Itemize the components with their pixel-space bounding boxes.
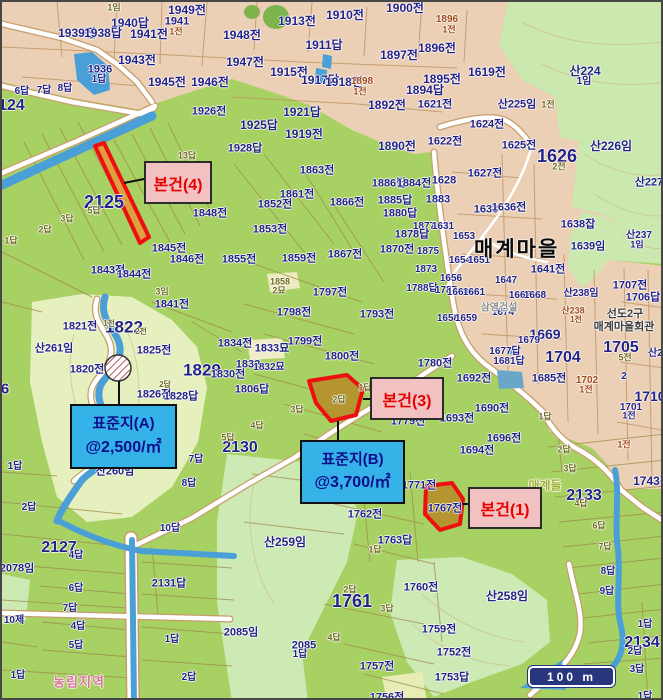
standard-lot-b-box: 표준지(B) @3,700/㎡ bbox=[300, 440, 405, 504]
subject-parcel-4 bbox=[95, 143, 149, 243]
standard-lot-a-box: 표준지(A) @2,500/㎡ bbox=[70, 404, 177, 469]
village-pond bbox=[497, 370, 524, 389]
tree-patch bbox=[244, 5, 260, 19]
channel bbox=[2, 116, 152, 185]
pale-patch bbox=[382, 672, 427, 700]
grave-patch bbox=[267, 272, 300, 292]
standard-lot-a-name: 표준지(A) bbox=[92, 413, 154, 436]
village-pond bbox=[508, 347, 518, 355]
village-name: 매계마을 bbox=[474, 233, 559, 263]
standard-lot-b-price: @3,700/㎡ bbox=[314, 471, 390, 495]
zoning-label-nonglim: 농림지역 bbox=[53, 672, 105, 691]
standard-lot-marker bbox=[105, 355, 131, 381]
village-hall-line2: 매계마을회관 bbox=[594, 318, 655, 334]
scale-bar: 100 m bbox=[528, 666, 615, 687]
tree-patch bbox=[263, 5, 289, 29]
scale-bar-text: 100 m bbox=[547, 670, 596, 684]
building-name-label: 삼영건설 bbox=[481, 299, 518, 314]
subject-4-callout: 본건(4) bbox=[144, 161, 212, 204]
subject-3-callout: 본건(3) bbox=[370, 377, 444, 420]
cadastral-map: 1949전1임1940답19411전1939전1938답1941전1943전19… bbox=[0, 0, 663, 700]
standard-lot-b-name: 표준지(B) bbox=[321, 449, 383, 472]
standard-lot-a-price: @2,500/㎡ bbox=[85, 436, 161, 460]
map-canvas bbox=[2, 2, 663, 700]
subject-1-callout: 본건(1) bbox=[468, 487, 542, 529]
subject-parcel-1 bbox=[425, 483, 463, 530]
grave-patch bbox=[247, 338, 285, 360]
subject-4-text: 본건(4) bbox=[154, 171, 203, 195]
subject-3-text: 본건(3) bbox=[383, 387, 432, 411]
subject-1-text: 본건(1) bbox=[481, 496, 530, 520]
subject-parcel-3 bbox=[309, 375, 363, 421]
